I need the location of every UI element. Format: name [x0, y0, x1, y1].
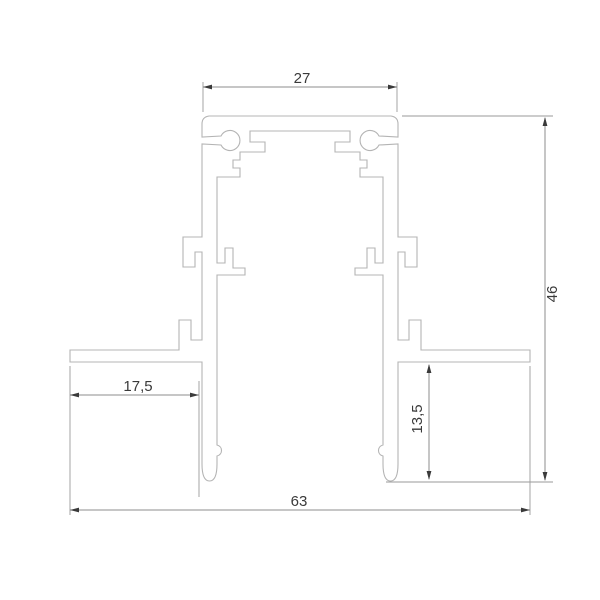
- arrow-right-icon: [388, 85, 397, 90]
- arrow-down-icon: [543, 472, 548, 481]
- arrow-left-icon: [70, 508, 79, 513]
- dimension-label-63: 63: [291, 493, 308, 510]
- technical-drawing: 27 63 46 17,5: [0, 0, 600, 600]
- arrow-right-icon: [521, 508, 530, 513]
- profile-outline: [70, 116, 530, 481]
- dimension-wing-depth: 13,5: [409, 364, 431, 480]
- arrow-up-icon: [427, 364, 432, 373]
- dimension-label-13-5: 13,5: [409, 404, 426, 433]
- arrow-up-icon: [543, 117, 548, 126]
- profile-contour: [70, 116, 530, 481]
- dimension-label-17-5: 17,5: [123, 378, 152, 395]
- arrow-left-icon: [203, 85, 212, 90]
- arrow-left-icon: [70, 393, 79, 398]
- arrow-down-icon: [427, 471, 432, 480]
- dimension-label-46: 46: [544, 286, 561, 303]
- dimension-wing-width: 17,5: [70, 378, 199, 497]
- drawing-canvas: 27 63 46 17,5: [0, 0, 600, 600]
- arrow-right-icon: [190, 393, 199, 398]
- dimension-label-27: 27: [294, 70, 311, 87]
- dimension-top-width: 27: [203, 70, 397, 112]
